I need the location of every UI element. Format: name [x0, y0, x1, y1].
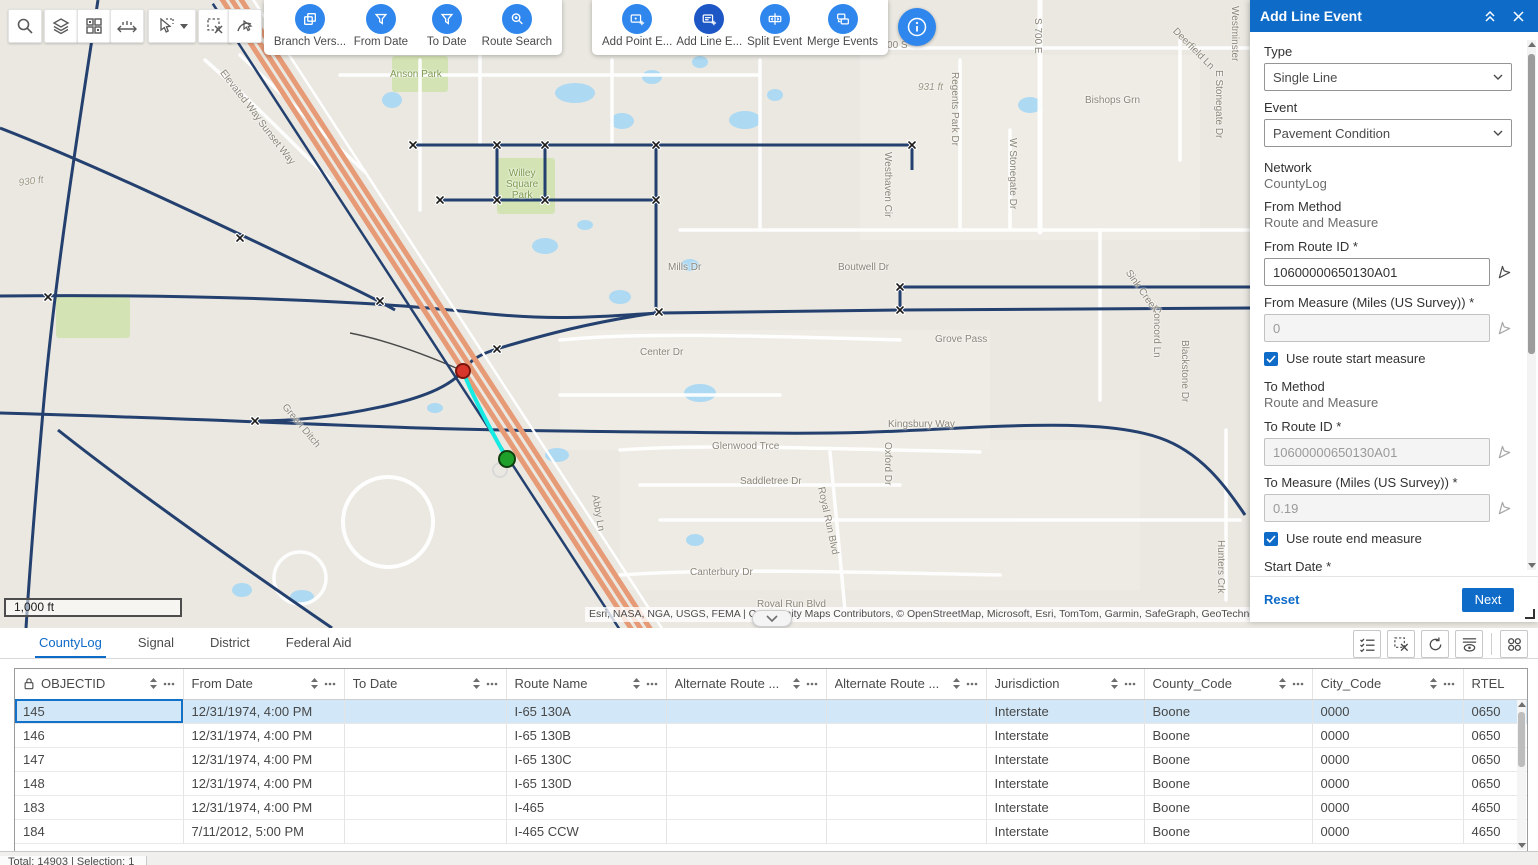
table-cell[interactable] — [826, 699, 986, 723]
table-cell[interactable]: 145 — [15, 699, 183, 723]
button-label: Split Event — [747, 36, 802, 48]
attribute-table: OBJECTID From Date To Date — [14, 668, 1528, 852]
column-header-jurisdiction[interactable]: Jurisdiction — [986, 669, 1144, 699]
map-view[interactable]: 930 ft931 ftElevated WaySunset WayAnson … — [0, 0, 1538, 628]
tab-district[interactable]: District — [206, 628, 254, 658]
clear-selection-icon — [206, 17, 224, 35]
route-search-button[interactable]: Route Search — [482, 4, 552, 48]
table-cell[interactable]: 148 — [15, 771, 183, 795]
sort-icon[interactable] — [1111, 678, 1118, 689]
add-point-event-button[interactable]: Add Point E... — [602, 4, 672, 48]
clear-selection-button[interactable] — [1387, 630, 1415, 658]
info-button[interactable] — [898, 8, 936, 46]
layers-icon — [52, 17, 70, 35]
close-icon — [1512, 10, 1525, 23]
table-cell[interactable]: 12/31/1974, 4:00 PM — [183, 771, 344, 795]
attribute-table-section: CountyLog Signal District Federal Aid — [0, 628, 1538, 865]
event-select[interactable]: Pavement Condition — [1264, 119, 1512, 147]
table-cell[interactable]: 0000 — [1312, 747, 1463, 771]
column-menu-icon[interactable] — [324, 682, 336, 686]
table-tab-bar: CountyLog Signal District Federal Aid — [0, 628, 1538, 659]
to-measure-marker[interactable] — [499, 451, 515, 467]
from-method-value: Route and Measure — [1264, 215, 1512, 230]
table-cell[interactable]: I-65 130C — [506, 747, 666, 771]
use-route-start-measure-row[interactable]: Use route start measure — [1264, 351, 1512, 366]
layers-button[interactable] — [44, 9, 78, 43]
merge-events-button[interactable]: Merge Events — [807, 4, 878, 48]
reset-link[interactable]: Reset — [1264, 592, 1462, 607]
column-header-from-date[interactable]: From Date — [183, 669, 344, 699]
measure-icon — [117, 17, 137, 35]
sort-icon[interactable] — [953, 678, 960, 689]
column-header-alternate-route-1[interactable]: Alternate Route ... — [666, 669, 826, 699]
tab-signal[interactable]: Signal — [134, 628, 178, 658]
event-toolbar-group: Add Point E... Add Line E... Split Event… — [592, 0, 888, 55]
add-line-event-button[interactable]: Add Line E... — [676, 4, 742, 48]
table-cell[interactable]: Interstate — [986, 747, 1144, 771]
column-menu-icon[interactable] — [806, 682, 818, 686]
type-value: Single Line — [1273, 70, 1493, 85]
measure-button[interactable] — [110, 9, 144, 43]
record-count-status: Total: 14903 | Selection: 1 — [0, 856, 147, 865]
chevron-down-icon — [1493, 130, 1503, 136]
add-line-event-panel: Add Line Event Type Single Line Event Pa… — [1250, 0, 1538, 622]
network-value: CountyLog — [1264, 176, 1512, 191]
branch-versions-icon — [295, 4, 325, 34]
to-route-id-label: To Route ID * — [1264, 419, 1512, 434]
basemap-grid-icon — [85, 17, 103, 35]
info-icon — [906, 16, 928, 38]
table-cell[interactable]: 146 — [15, 723, 183, 747]
button-label: Add Line E... — [676, 36, 742, 48]
use-route-start-measure-checkbox[interactable] — [1264, 352, 1278, 366]
table-cell[interactable] — [344, 723, 506, 747]
table-cell[interactable]: 0000 — [1312, 795, 1463, 819]
table-cell[interactable] — [666, 723, 826, 747]
table-cell[interactable]: Interstate — [986, 723, 1144, 747]
column-menu-icon[interactable] — [1443, 682, 1455, 686]
table-row[interactable]: 14512/31/1974, 4:00 PMI-65 130AInterstat… — [15, 699, 1528, 723]
panel-title: Add Line Event — [1260, 8, 1472, 24]
check-icon — [1266, 355, 1276, 363]
from-measure-label: From Measure (Miles (US Survey)) * — [1264, 295, 1512, 310]
column-label: City_Code — [1321, 676, 1424, 691]
table-cell[interactable]: I-465 CCW — [506, 819, 666, 843]
table-cell[interactable]: I-465 — [506, 795, 666, 819]
table-cell[interactable]: 0000 — [1312, 771, 1463, 795]
to-date-filter-icon — [432, 4, 462, 34]
scrollbar-thumb[interactable] — [1528, 54, 1535, 354]
button-label: From Date — [354, 36, 408, 48]
refresh-icon — [1427, 636, 1444, 653]
tab-federal-aid[interactable]: Federal Aid — [282, 628, 356, 658]
table-cell[interactable]: 0000 — [1312, 819, 1463, 843]
show-hide-columns-button[interactable] — [1455, 630, 1483, 658]
map-scalebar: 1,000 ft — [4, 598, 182, 617]
column-menu-icon[interactable] — [966, 682, 978, 686]
search-button[interactable] — [8, 9, 42, 43]
clear-selection-button[interactable] — [198, 9, 232, 43]
table-cell[interactable] — [826, 747, 986, 771]
column-label: Route Name — [515, 676, 627, 691]
column-menu-icon[interactable] — [646, 682, 658, 686]
check-icon — [1266, 535, 1276, 543]
chevron-down-icon — [1493, 74, 1503, 80]
add-line-event-icon — [694, 4, 724, 34]
scale-label: 1,000 ft — [14, 600, 54, 614]
table-cell[interactable] — [344, 795, 506, 819]
panel-footer: Reset Next — [1250, 576, 1538, 622]
event-editor-app: 930 ft931 ftElevated WaySunset WayAnson … — [0, 0, 1538, 865]
chevron-down-icon — [766, 615, 778, 622]
sort-icon[interactable] — [1279, 678, 1286, 689]
table-cell[interactable]: 184 — [15, 819, 183, 843]
table-cell[interactable]: Boone — [1144, 723, 1312, 747]
scroll-up-arrow[interactable] — [1528, 42, 1536, 47]
table-cell[interactable] — [826, 723, 986, 747]
event-value: Pavement Condition — [1273, 126, 1493, 141]
chevron-down-icon — [180, 24, 188, 29]
to-measure-label: To Measure (Miles (US Survey)) * — [1264, 475, 1512, 490]
table-row[interactable]: 1847/11/2012, 5:00 PMI-465 CCWInterstate… — [15, 819, 1528, 843]
table-cell[interactable]: 183 — [15, 795, 183, 819]
column-label: OBJECTID — [41, 676, 144, 691]
show-selection-icon — [1359, 636, 1376, 653]
sort-icon[interactable] — [473, 678, 480, 689]
table-cell[interactable] — [344, 771, 506, 795]
checkbox-label: Use route start measure — [1286, 351, 1425, 366]
table-header-row: OBJECTID From Date To Date — [15, 669, 1528, 699]
table-cell[interactable]: I-65 130A — [506, 699, 666, 723]
table-cell[interactable] — [666, 699, 826, 723]
scroll-up-arrow[interactable] — [1518, 702, 1526, 707]
table-cell[interactable] — [666, 747, 826, 771]
table-cell[interactable]: 12/31/1974, 4:00 PM — [183, 747, 344, 771]
column-label: From Date — [192, 676, 305, 691]
search-icon — [16, 17, 34, 35]
scroll-down-arrow[interactable] — [1528, 563, 1536, 568]
options-grid-icon — [1506, 636, 1523, 653]
column-header-county-code[interactable]: County_Code — [1144, 669, 1312, 699]
route-search-icon — [502, 4, 532, 34]
table-cell[interactable] — [344, 699, 506, 723]
column-label: To Date — [353, 676, 467, 691]
pick-from-map-icon — [1497, 445, 1512, 460]
to-method-label: To Method — [1264, 379, 1512, 394]
to-route-id-input — [1264, 438, 1490, 466]
scrollbar-thumb[interactable] — [1518, 712, 1525, 767]
column-header-city-code[interactable]: City_Code — [1312, 669, 1463, 699]
sort-icon[interactable] — [633, 678, 640, 689]
next-button[interactable]: Next — [1462, 588, 1514, 612]
show-hide-columns-icon — [1461, 636, 1478, 653]
from-measure-marker[interactable] — [456, 364, 470, 378]
start-date-label: Start Date * — [1264, 559, 1512, 574]
pick-from-map-icon — [1497, 501, 1512, 516]
panel-resize-handle[interactable] — [1525, 609, 1535, 619]
select-route-button[interactable] — [228, 9, 262, 43]
table-cell[interactable] — [826, 771, 986, 795]
table-row[interactable]: 18312/31/1974, 4:00 PMI-465InterstateBoo… — [15, 795, 1528, 819]
sort-icon[interactable] — [150, 678, 157, 689]
merge-events-icon — [828, 4, 858, 34]
toolbar-divider — [1491, 633, 1492, 655]
select-tool-button[interactable] — [148, 9, 196, 43]
pick-from-map-icon — [1497, 321, 1512, 336]
column-header-to-date[interactable]: To Date — [344, 669, 506, 699]
collapse-table-chevron[interactable] — [752, 610, 792, 627]
tab-countylog[interactable]: CountyLog — [35, 628, 106, 658]
panel-header: Add Line Event — [1250, 0, 1538, 32]
tab-label: Federal Aid — [286, 635, 352, 650]
table-cell[interactable]: 0000 — [1312, 699, 1463, 723]
event-label: Event — [1264, 100, 1512, 115]
show-selection-button[interactable] — [1353, 630, 1381, 658]
button-label: Route Search — [482, 36, 552, 48]
branch-versions-button[interactable]: Branch Vers... — [274, 4, 346, 48]
table-cell[interactable]: Boone — [1144, 771, 1312, 795]
table-cell[interactable] — [666, 795, 826, 819]
table-cell[interactable] — [826, 819, 986, 843]
clear-selection-icon — [1393, 636, 1410, 653]
tab-label: Signal — [138, 635, 174, 650]
from-measure-input — [1264, 314, 1490, 342]
table-toolbar — [1353, 630, 1528, 658]
table-cell[interactable]: 12/31/1974, 4:00 PM — [183, 795, 344, 819]
table-cell[interactable]: 7/11/2012, 5:00 PM — [183, 819, 344, 843]
sort-icon[interactable] — [311, 678, 318, 689]
panel-body: Type Single Line Event Pavement Conditio… — [1250, 32, 1538, 576]
select-icon — [157, 17, 177, 35]
column-menu-icon[interactable] — [1292, 682, 1304, 686]
column-header-alternate-route-2[interactable]: Alternate Route ... — [826, 669, 986, 699]
table-cell[interactable]: 147 — [15, 747, 183, 771]
status-bar: Total: 14903 | Selection: 1 — [0, 851, 1538, 865]
from-route-id-label: From Route ID * — [1264, 239, 1512, 254]
table-cell[interactable]: Boone — [1144, 747, 1312, 771]
close-panel-button[interactable] — [1508, 6, 1528, 26]
table-cell[interactable]: Interstate — [986, 795, 1144, 819]
basemap-gallery-button[interactable] — [77, 9, 111, 43]
column-menu-icon[interactable] — [163, 682, 175, 686]
tab-label: District — [210, 635, 250, 650]
sort-icon[interactable] — [793, 678, 800, 689]
table-cell[interactable]: Interstate — [986, 699, 1144, 723]
to-measure-input — [1264, 494, 1490, 522]
table-cell[interactable]: 0000 — [1312, 723, 1463, 747]
button-label: Branch Vers... — [274, 36, 346, 48]
lrs-toolbar-group: Branch Vers... From Date To Date Route S… — [264, 0, 562, 55]
split-event-button[interactable]: Split Event — [746, 4, 803, 48]
from-method-label: From Method — [1264, 199, 1512, 214]
table-cell[interactable]: Boone — [1144, 699, 1312, 723]
table-cell[interactable] — [666, 771, 826, 795]
select-route-icon — [236, 17, 254, 35]
table-cell[interactable]: I-65 130D — [506, 771, 666, 795]
refresh-button[interactable] — [1421, 630, 1449, 658]
from-route-id-input[interactable] — [1264, 258, 1490, 286]
use-route-end-measure-row[interactable]: Use route end measure — [1264, 531, 1512, 546]
table-cell[interactable]: Boone — [1144, 795, 1312, 819]
tab-label: CountyLog — [39, 635, 102, 650]
button-label: To Date — [427, 36, 467, 48]
panel-scrollbar[interactable] — [1527, 40, 1536, 570]
column-menu-icon[interactable] — [1124, 682, 1136, 686]
network-label: Network — [1264, 160, 1512, 175]
lock-icon — [23, 677, 35, 690]
table-vertical-scrollbar[interactable] — [1517, 700, 1526, 850]
collapse-panel-button[interactable] — [1480, 6, 1500, 26]
table-cell[interactable] — [344, 819, 506, 843]
type-select[interactable]: Single Line — [1264, 63, 1512, 91]
from-date-button[interactable]: From Date — [350, 4, 412, 48]
pick-from-map-icon[interactable] — [1497, 265, 1512, 280]
column-header-objectid[interactable]: OBJECTID — [15, 669, 183, 699]
use-route-end-measure-checkbox[interactable] — [1264, 532, 1278, 546]
scroll-down-arrow[interactable] — [1518, 843, 1526, 848]
column-label: Alternate Route ... — [675, 676, 787, 691]
column-menu-icon[interactable] — [486, 682, 498, 686]
add-point-event-icon — [622, 4, 652, 34]
button-label: Add Point E... — [602, 36, 672, 48]
column-label: Alternate Route ... — [835, 676, 947, 691]
split-event-icon — [760, 4, 790, 34]
checkbox-label: Use route end measure — [1286, 531, 1422, 546]
column-header-rtel[interactable]: RTEL — [1463, 669, 1528, 699]
table-row[interactable]: 14712/31/1974, 4:00 PMI-65 130CInterstat… — [15, 747, 1528, 771]
table-cell[interactable] — [826, 795, 986, 819]
table-cell[interactable]: Boone — [1144, 819, 1312, 843]
to-method-value: Route and Measure — [1264, 395, 1512, 410]
table-cell[interactable]: I-65 130B — [506, 723, 666, 747]
to-date-button[interactable]: To Date — [416, 4, 478, 48]
table-cell[interactable] — [344, 747, 506, 771]
table-cell[interactable]: 12/31/1974, 4:00 PM — [183, 699, 344, 723]
table-cell[interactable] — [666, 819, 826, 843]
table-row[interactable]: 14812/31/1974, 4:00 PMI-65 130DInterstat… — [15, 771, 1528, 795]
options-grid-button[interactable] — [1500, 630, 1528, 658]
table-row[interactable]: 14612/31/1974, 4:00 PMI-65 130BInterstat… — [15, 723, 1528, 747]
double-chevron-up-icon — [1483, 10, 1497, 23]
table-cell[interactable]: Interstate — [986, 771, 1144, 795]
column-label: Jurisdiction — [995, 676, 1105, 691]
type-label: Type — [1264, 44, 1512, 59]
table-cell[interactable]: Interstate — [986, 819, 1144, 843]
button-label: Merge Events — [807, 36, 878, 48]
table-cell[interactable]: 12/31/1974, 4:00 PM — [183, 723, 344, 747]
column-label: County_Code — [1153, 676, 1273, 691]
column-label: RTEL — [1472, 676, 1521, 691]
sort-icon[interactable] — [1430, 678, 1437, 689]
from-date-filter-icon — [366, 4, 396, 34]
column-header-route-name[interactable]: Route Name — [506, 669, 666, 699]
